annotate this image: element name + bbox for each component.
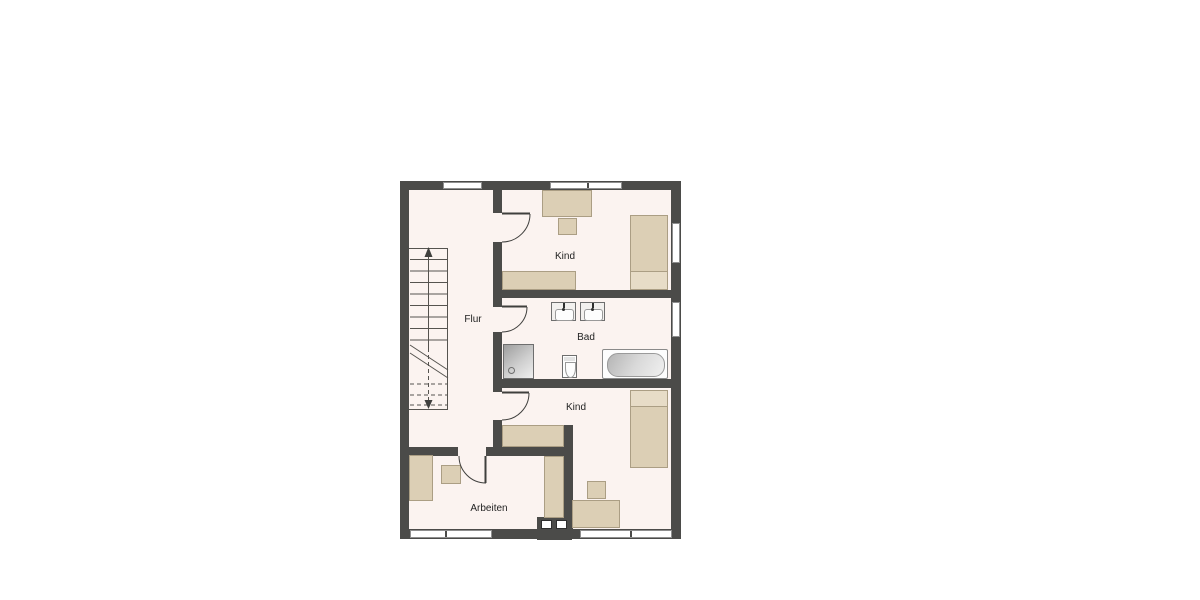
faucet-dot: [591, 308, 594, 311]
chimney-flue-2: [556, 520, 567, 529]
room-label-arbeiten: Arbeiten: [470, 504, 507, 514]
window-bad-east: [672, 302, 680, 337]
desk-kind-top: [542, 190, 592, 217]
room-label-kind-bottom: Kind: [566, 403, 586, 413]
bathtub-basin: [607, 353, 665, 377]
shower: [503, 344, 534, 379]
wall-hall-seg-1: [493, 190, 502, 213]
window-flur-north: [443, 182, 482, 189]
chair-kind-top: [558, 218, 577, 235]
window-mullion: [445, 531, 447, 537]
room-label-bad: Bad: [577, 333, 595, 343]
window-mullion: [587, 183, 589, 188]
desk-kind-bottom: [572, 500, 620, 528]
wall-hall-seg-4: [493, 420, 502, 456]
wardrobe-arbeiten: [544, 456, 564, 518]
window-mullion: [630, 531, 632, 537]
chair-arbeiten: [441, 465, 461, 484]
toilet-bowl: [565, 362, 576, 378]
bed-kind-top: [630, 215, 668, 290]
wall-outer-left: [400, 181, 409, 539]
window-kind-top-east: [672, 223, 680, 263]
shower-drain: [508, 367, 515, 374]
bathtub: [602, 349, 668, 379]
washbasin-left: [551, 302, 576, 321]
bed-foot-section: [631, 271, 667, 289]
wall-hall-seg-3: [493, 332, 502, 392]
sideboard-kind-top: [502, 271, 576, 290]
chair-kind-bottom: [587, 481, 606, 499]
wall-bad-kind-bottom: [493, 379, 681, 388]
room-label-flur: Flur: [464, 315, 481, 325]
toilet: [562, 355, 577, 378]
window-kind-top-north: [550, 182, 622, 189]
chimney-flue-1: [541, 520, 552, 529]
toilet-cistern: [564, 357, 575, 361]
bed-pillow-section: [631, 391, 667, 407]
wall-hall-seg-2: [493, 242, 502, 307]
room-label-kind-top: Kind: [555, 252, 575, 262]
window-arbeiten-south: [410, 530, 492, 538]
staircase: [409, 248, 448, 410]
wall-kind-top-bad: [493, 290, 681, 298]
basin: [555, 309, 574, 321]
desk-arbeiten: [409, 455, 433, 501]
window-kind-bottom-south: [580, 530, 672, 538]
page-canvas: { "plan": { "type": "floor-plan", "floor…: [0, 0, 1200, 600]
washbasin-right: [580, 302, 605, 321]
sideboard-kind-bottom: [502, 425, 564, 447]
faucet-dot: [562, 308, 565, 311]
basin: [584, 309, 603, 321]
bed-kind-bottom: [630, 390, 668, 468]
